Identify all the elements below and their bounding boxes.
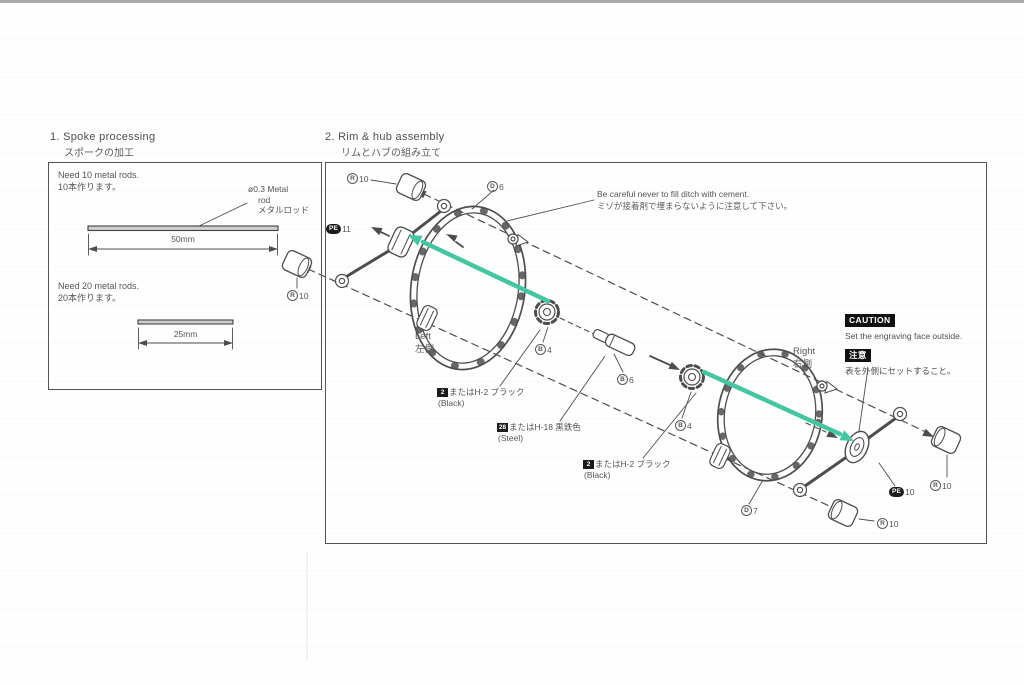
- section2-title-jp: リムとハブの組み立て: [341, 144, 441, 159]
- caution-text-en: Set the engraving face outside.: [845, 330, 985, 342]
- part-label-pe11: PE11: [326, 224, 351, 234]
- need10-en: Need 10 metal rods.: [58, 169, 139, 181]
- part-label-pe10: PE10: [889, 487, 915, 497]
- paint-note-steel: 28またはH-18 黒鉄色 (Steel): [497, 422, 581, 443]
- caution-block: CAUTION Set the engraving face outside. …: [845, 310, 985, 380]
- need10-jp: 10本作ります。: [58, 181, 121, 193]
- part-label-b4-left: B4: [535, 344, 552, 355]
- rod-callout: ø0.3 Metal rod メタルロッド: [248, 184, 309, 216]
- part-label-b6: B6: [617, 374, 634, 385]
- part-label-r10-top-left: R10: [347, 173, 368, 184]
- need20-en: Need 20 metal rods.: [58, 280, 139, 292]
- part-label-b4-right: B4: [675, 420, 692, 431]
- left-side-label: Left 左側: [415, 330, 434, 356]
- part-label-d6: D6: [487, 181, 504, 192]
- need20-jp: 20本作ります。: [58, 292, 121, 304]
- caution-text-jp: 表を外側にセットすること。: [845, 365, 985, 377]
- caution-badge-jp: 注意: [845, 349, 871, 362]
- dimension-25mm: 25mm: [138, 329, 233, 339]
- section2-title: 2. Rim & hub assembly: [325, 131, 444, 143]
- paint-note-black-right: 2またはH-2 ブラック (Black): [583, 459, 671, 480]
- section1-title-jp: スポークの加工: [64, 144, 134, 159]
- part-label-r10-right-upper: R10: [930, 480, 951, 491]
- part-label-r10-mid-left: R10: [287, 290, 308, 301]
- part-label-d7: D7: [741, 505, 758, 516]
- part-label-r10-right-lower: R10: [877, 518, 898, 529]
- caution-badge: CAUTION: [845, 314, 895, 327]
- right-side-label: Right 右側: [793, 345, 815, 371]
- paint-note-black-left: 2またはH-2 ブラック (Black): [437, 387, 525, 408]
- dimension-50mm: 50mm: [88, 234, 278, 244]
- cement-note: Be careful never to fill ditch with ceme…: [597, 189, 792, 212]
- instruction-sheet-page: 1. Spoke processing スポークの加工 2. Rim & hub…: [0, 0, 1024, 684]
- section1-title: 1. Spoke processing: [50, 131, 155, 143]
